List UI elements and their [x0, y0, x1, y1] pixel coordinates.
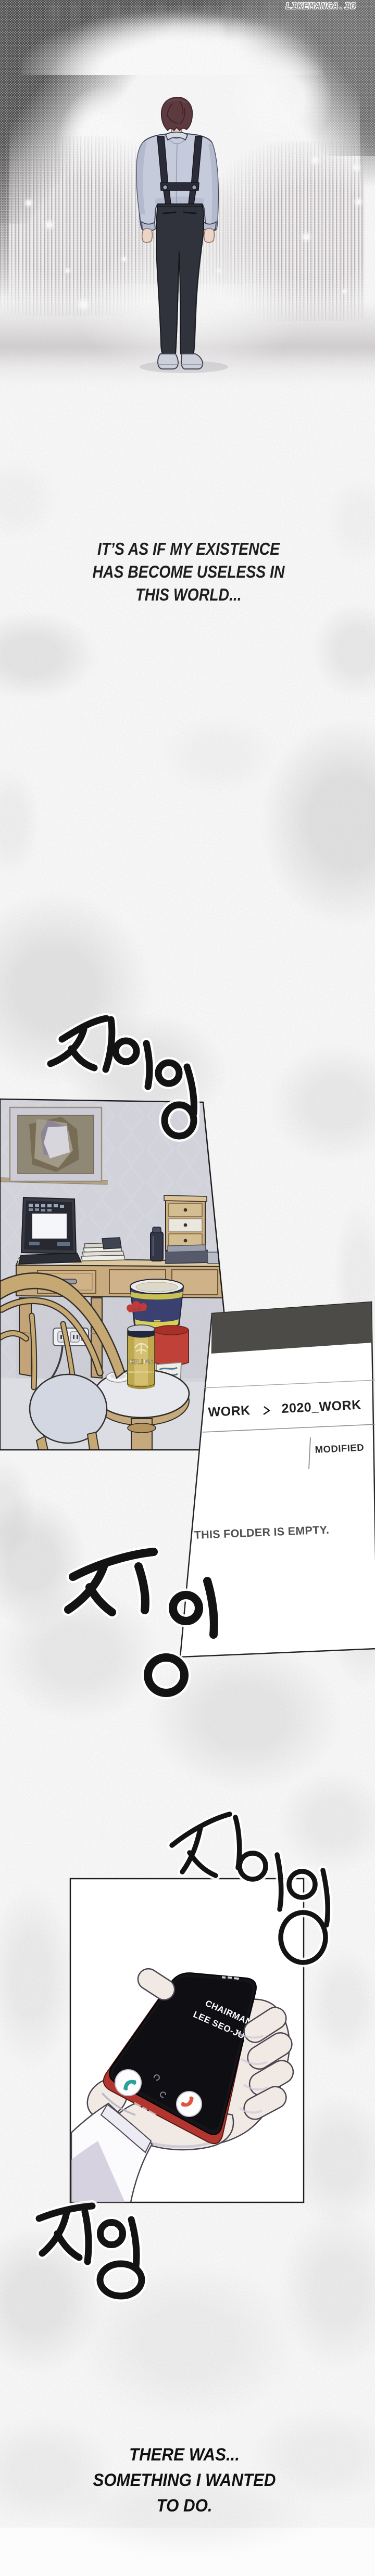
svg-text:WORK: WORK [208, 1403, 251, 1420]
svg-text:ORIGINAL GRAVITY: ORIGINAL GRAVITY [128, 1371, 155, 1374]
svg-text:HIL!PS: HIL!PS [129, 1358, 153, 1366]
